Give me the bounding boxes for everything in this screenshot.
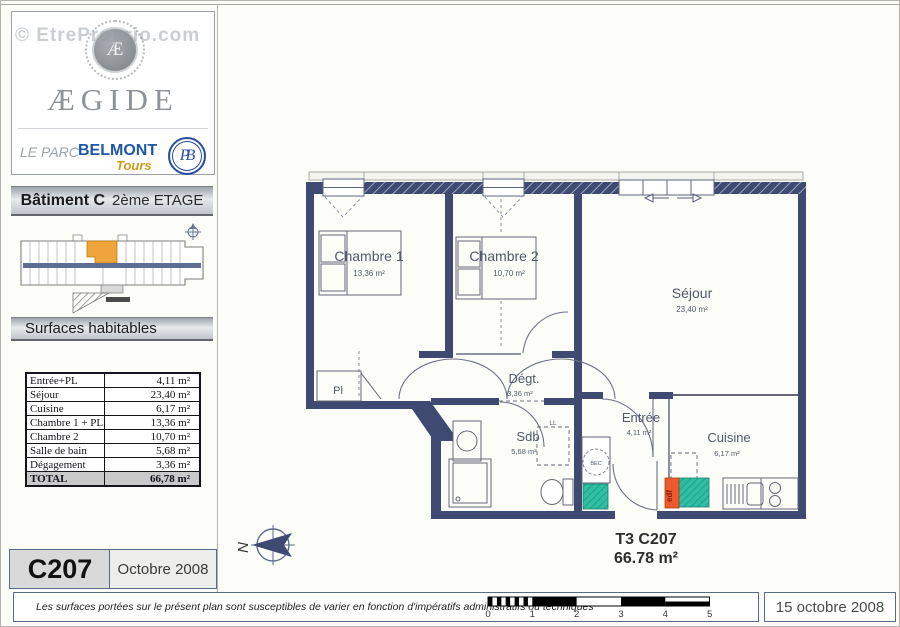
key-plan-outline	[21, 223, 203, 313]
plan-date-box: 15 octobre 2008	[764, 592, 896, 622]
table-row: Cuisine 6,17 m²	[27, 401, 199, 415]
pb-badge-letters: PB	[180, 147, 195, 165]
row-value: 4,11 m²	[105, 375, 199, 387]
bec-label: BEC	[590, 461, 601, 467]
row-label: Salle de bain	[27, 444, 105, 457]
kitchen-counter	[723, 478, 798, 509]
row-value: 5,68 m²	[105, 445, 199, 457]
room-area-sejour: 23,40 m²	[676, 305, 708, 314]
north-letter: N	[234, 542, 251, 553]
room-area-chambre2: 10,70 m²	[493, 269, 525, 278]
table-row: Chambre 2 10,70 m²	[27, 429, 199, 443]
row-label: Chambre 1 + PL	[27, 416, 105, 429]
toilet-icon	[541, 479, 573, 505]
floor-name: 2ème ETAGE	[112, 192, 203, 209]
surfaces-title: Surfaces habitables	[25, 320, 157, 337]
scale-bar: 0 1 2 3 4 5	[485, 593, 715, 626]
bed-chambre2	[456, 237, 536, 299]
table-row: Entrée+PL 4,11 m²	[27, 374, 199, 387]
row-value: 13,36 m²	[105, 417, 199, 429]
walls	[306, 182, 806, 519]
room-area-cuisine: 6,17 m²	[714, 449, 740, 458]
row-label: Entrée+PL	[27, 374, 105, 387]
row-label: Chambre 2	[27, 430, 105, 443]
unit-area: 66.78 m²	[614, 550, 678, 567]
table-row: Dégagement 3,36 m²	[27, 457, 199, 471]
pb-badge-icon: PB	[168, 137, 206, 175]
facade-strip	[309, 172, 803, 180]
room-area-sdb: 5,68 m²	[511, 447, 537, 456]
room-area-entree: 4,11 m²	[627, 428, 652, 437]
sheet-top-rule	[1, 4, 899, 5]
duct-teal-cuisine	[679, 478, 709, 507]
svg-text:3: 3	[618, 609, 623, 620]
row-label: Cuisine	[27, 402, 105, 415]
total-label: TOTAL	[27, 472, 105, 485]
surface-table: Entrée+PL 4,11 m² Séjour 23,40 m² Cuisin…	[25, 372, 201, 487]
room-label-cuisine: Cuisine	[707, 430, 750, 445]
room-label-degt: Dégt.	[508, 371, 539, 386]
unit-type-code: T3 C207	[615, 531, 676, 548]
key-plan-compass-icon	[185, 223, 201, 240]
plan-date: 15 octobre 2008	[776, 599, 884, 616]
room-area-degt: 3,36 m²	[507, 389, 533, 398]
watermark: © EtreProprio.com	[15, 25, 200, 47]
logo-divider	[18, 128, 208, 129]
table-total-row: TOTAL 66,78 m²	[27, 471, 199, 485]
shower-icon	[449, 459, 491, 507]
scale-blocks	[488, 597, 710, 606]
scale-ticks: 0 1 2 3 4 5	[485, 609, 712, 620]
row-value: 23,40 m²	[105, 389, 199, 401]
table-row: Salle de bain 5,68 m²	[27, 443, 199, 457]
duct-teal-entree	[583, 484, 608, 509]
row-value: 10,70 m²	[105, 431, 199, 443]
row-value: 6,17 m²	[105, 403, 199, 415]
hob-burner-icon	[770, 483, 781, 494]
plan-sheet: © EtreProprio.com Æ ÆGIDE LE PARC BELMON…	[0, 0, 900, 627]
wall-hatch	[364, 182, 806, 194]
unit-code: C207	[9, 549, 111, 589]
washer-label: LL	[549, 420, 557, 427]
total-value: 66,78 m²	[105, 473, 199, 485]
svg-text:2: 2	[574, 609, 579, 620]
row-label: Séjour	[27, 388, 105, 401]
issue-date: Octobre 2008	[109, 549, 217, 589]
room-label-chambre1: Chambre 1	[334, 248, 403, 264]
surfaces-header: Surfaces habitables	[11, 317, 213, 341]
corridor	[23, 263, 201, 268]
svg-text:5: 5	[707, 609, 712, 620]
row-value: 3,36 m²	[105, 459, 199, 471]
residence-logo: LE PARC BELMONT Tours PB	[12, 136, 214, 172]
room-label-entree: Entrée	[622, 410, 660, 425]
room-label-chambre2: Chambre 2	[469, 248, 538, 264]
room-label-sdb: Sdb	[516, 429, 539, 444]
building-key-plan	[13, 219, 211, 315]
table-row: Chambre 1 + PL 13,36 m²	[27, 415, 199, 429]
residence-city: Tours	[116, 158, 152, 173]
bec-duct	[582, 437, 610, 483]
unit-summary: T3 C207 66.78 m²	[614, 531, 678, 567]
floor-plan: Chambre 1 13,36 m² Chambre 2 10,70 m² Sé…	[221, 161, 811, 576]
building-header: Bâtiment C 2ème ETAGE	[11, 186, 213, 216]
closet-pl	[317, 371, 381, 401]
north-compass-icon: N	[234, 525, 295, 565]
table-row: Séjour 23,40 m²	[27, 387, 199, 401]
cuisine-dashed-closet	[671, 453, 697, 479]
building-name: Bâtiment C	[21, 192, 105, 210]
casement-swing-lines	[325, 197, 522, 397]
room-labels: Chambre 1 13,36 m² Chambre 2 10,70 m² Sé…	[333, 248, 751, 502]
room-area-chambre1: 13,36 m²	[353, 269, 385, 278]
row-label: Dégagement	[27, 458, 105, 471]
aegide-wordmark: ÆGIDE	[12, 82, 214, 118]
room-label-sejour: Séjour	[672, 285, 713, 301]
washing-machine-icon	[453, 421, 481, 461]
closet-label: Pl	[333, 385, 343, 397]
hob-burner-icon	[770, 496, 781, 507]
svg-text:4: 4	[663, 609, 668, 620]
edf-label: edf	[665, 490, 674, 502]
svg-text:0: 0	[485, 609, 490, 620]
ramp-hatch	[73, 293, 109, 313]
sidebar-divider	[217, 4, 218, 592]
svg-text:1: 1	[530, 609, 535, 620]
residence-prefix: LE PARC	[20, 144, 79, 160]
